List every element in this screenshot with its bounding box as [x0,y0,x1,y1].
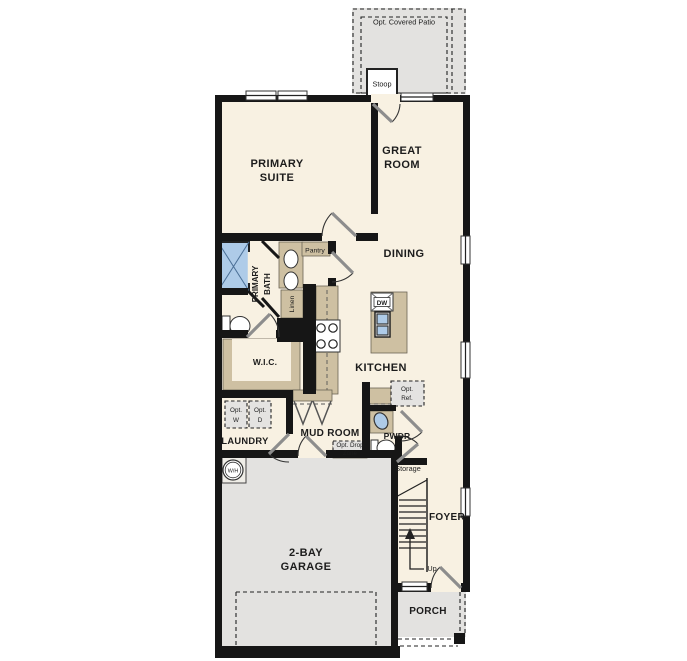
pantry-label: Pantry [305,248,325,255]
opt-dryer-label-1: Opt. [254,407,266,414]
porch-label: PORCH [409,606,447,617]
dining-window-2 [461,342,470,378]
island-sink [375,312,390,337]
floor-plan: Opt. Covered Patio Stoop PRIMARY SUITE G… [0,0,687,661]
floor-plan-drawing: Opt. Covered Patio Stoop PRIMARY SUITE G… [0,0,687,661]
up-label: Up [427,564,436,573]
garage-label-2: GARAGE [281,561,332,573]
stoop-label: Stoop [372,80,391,89]
primary-suite-label-1: PRIMARY [250,158,303,170]
porch [398,592,466,646]
garage-label-1: 2-BAY [289,547,323,559]
ref-counter [367,388,391,404]
great-room-label-1: GREAT [382,145,422,157]
kitchen-label: KITCHEN [355,362,407,374]
vanity-sink-1 [284,250,298,268]
laundry-label: LAUNDRY [221,436,269,446]
shower [218,242,249,291]
water-heater-label: W/H [228,469,239,475]
great-room-rear-window [401,93,433,101]
mud-room-label: MUD ROOM [300,428,359,439]
opt-covered-patio-label: Opt. Covered Patio [373,18,435,27]
range-stove [314,320,340,352]
primary-suite-label-2: SUITE [260,172,294,184]
opt-drop-zone-label-2: Zone [343,450,358,457]
linen-label: Linen [289,295,296,312]
opt-washer-label-1: Opt. [230,407,242,414]
dishwasher-label: DW [377,300,388,307]
opt-ref-box [391,381,424,406]
opt-dryer-label-2: D [258,417,263,424]
bedroom-window-2 [278,91,307,100]
bedroom-window-1 [246,91,276,100]
opt-washer-label-2: W [233,417,239,424]
porch-post [454,633,465,644]
storage-label: Storage [395,464,421,473]
primary-bath-label-2: BATH [263,273,272,295]
opt-drop-zone-label-1: Opt. Drop [336,442,364,449]
vanity-sink-2 [284,272,298,290]
opt-ref-label-1: Opt. [401,386,413,393]
great-room-label-2: ROOM [384,159,420,171]
pwdr-label: PWDR [384,431,411,441]
wic-label: W.I.C. [253,357,277,367]
foyer-label: FOYER [429,512,465,523]
opt-ref-label-2: Ref. [401,395,413,402]
primary-bath-label-1: PRIMARY [251,265,260,302]
dining-window-1 [461,236,470,264]
porch-window [402,582,427,591]
dining-label: DINING [384,248,425,260]
